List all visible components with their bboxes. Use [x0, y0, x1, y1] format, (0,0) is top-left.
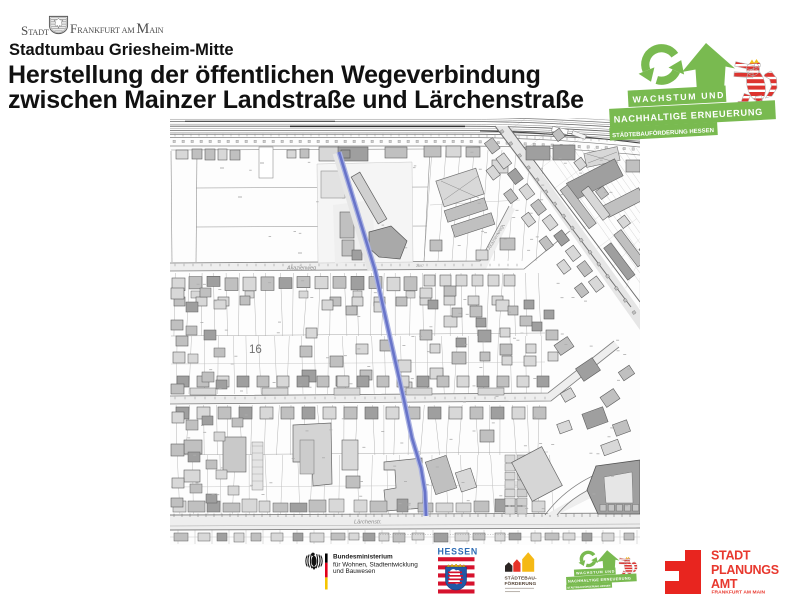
svg-text:AMT: AMT — [711, 577, 738, 591]
svg-text:16: 16 — [249, 344, 262, 356]
svg-text:FÖRDERUNG: FÖRDERUNG — [505, 580, 537, 587]
svg-text:2697: 2697 — [416, 264, 424, 268]
svg-text:Bundesministerium: Bundesministerium — [333, 554, 393, 561]
svg-text:STADT: STADT — [711, 549, 751, 563]
svg-text:und Bauwesen: und Bauwesen — [333, 568, 376, 575]
svg-text:Akazienweg: Akazienweg — [286, 265, 316, 271]
svg-text:Lärchenstr.: Lärchenstr. — [354, 520, 382, 526]
svg-text:PLANUNGS: PLANUNGS — [711, 563, 779, 577]
svg-text:HESSEN: HESSEN — [438, 547, 478, 557]
svg-text:STÄDTEBAU-: STÄDTEBAU- — [505, 575, 537, 582]
svg-text:FRANKFURT AM MAIN: FRANKFURT AM MAIN — [712, 590, 766, 596]
